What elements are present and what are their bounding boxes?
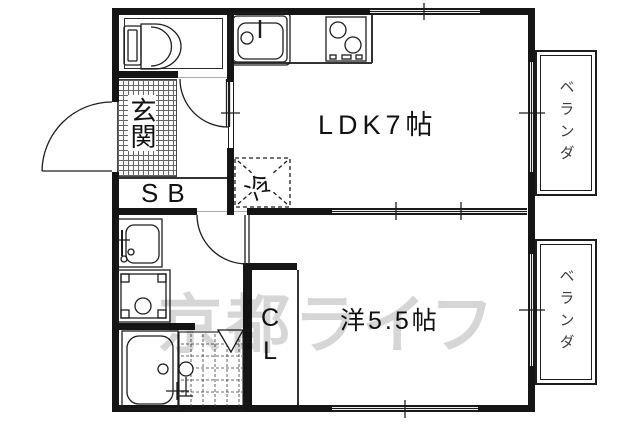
shoe-box-label: SB: [141, 178, 194, 209]
ldk-label: LDK7帖: [318, 103, 438, 142]
gas-stove-icon: [326, 17, 366, 61]
washroom-door-icon: [197, 215, 249, 264]
entrance-door-icon: [42, 102, 112, 171]
washbasin-icon: [117, 219, 162, 267]
toilet-icon: [124, 24, 181, 69]
genkan-label: 玄関: [128, 95, 156, 151]
watermark-text: 京都ライフ: [158, 274, 498, 366]
toilet-door-icon: [180, 79, 230, 127]
floor-plan: ベランダ ベランダ: [0, 0, 640, 427]
kitchen-sink-icon: [230, 13, 290, 65]
